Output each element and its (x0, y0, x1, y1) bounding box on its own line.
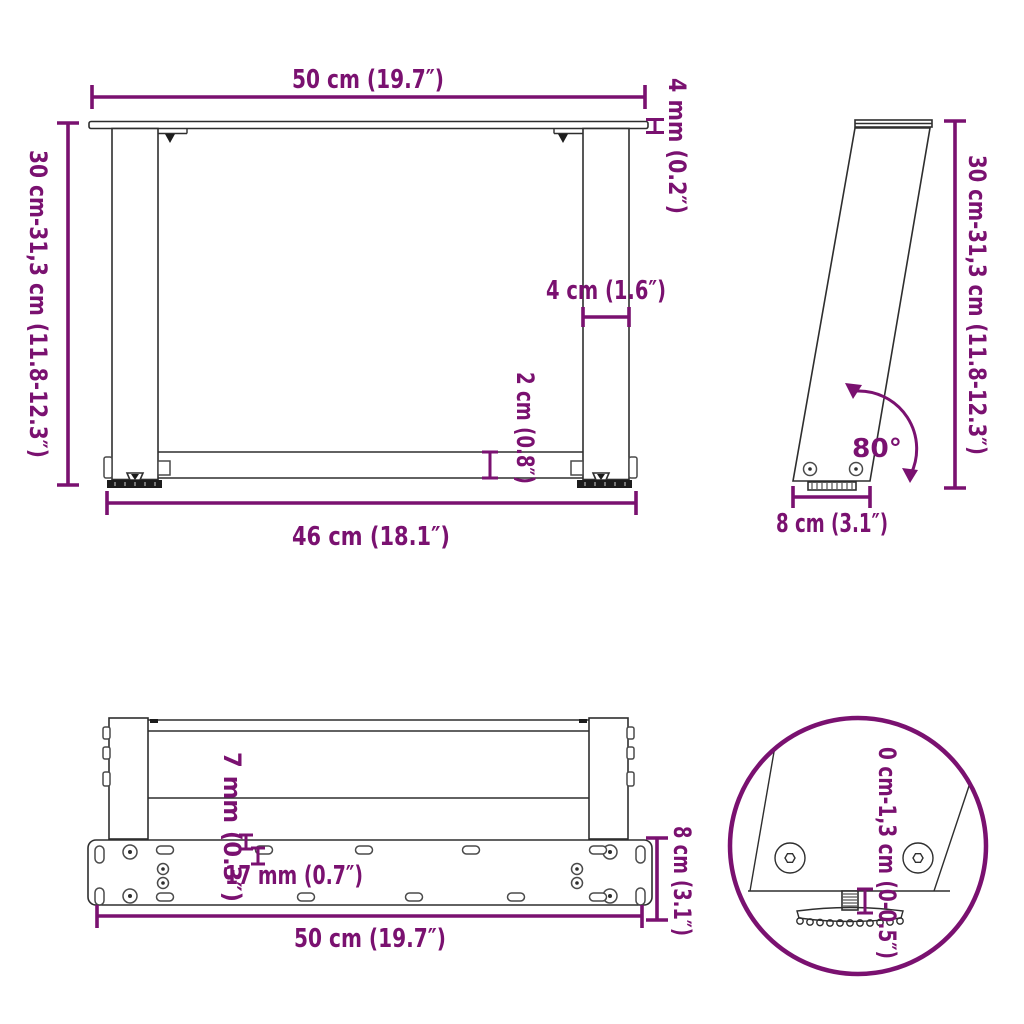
front-width-top-dimension: 50 cm (19.7″) (92, 65, 645, 109)
top-hole-pitch-label: 17 mm (0.7″) (225, 861, 363, 891)
front-right-tab (629, 457, 637, 478)
side-height-dimension: 30 cm-31,3 cm (11.8-12.3″) (944, 121, 991, 488)
side-leg (793, 128, 930, 481)
detail-circle (730, 718, 986, 974)
side-view: 30 cm-31,3 cm (11.8-12.3″) 80° 8 cm (3.1… (776, 120, 991, 539)
dimension-diagram: 50 cm (19.7″) 4 mm (0.2″) (0, 0, 1024, 1024)
top-plate-depth-dimension: 8 cm (3.1″) (646, 826, 696, 936)
front-leg-width-label: 4 cm (1.6″) (546, 276, 666, 306)
front-crossbar-dimension: 2 cm (0.8″) (482, 372, 539, 484)
top-right-screw-mark (579, 719, 587, 723)
front-crossbar-label: 2 cm (0.8″) (511, 372, 539, 484)
front-plate-thickness-dimension: 4 mm (0.2″) (646, 78, 691, 214)
side-angle-label: 80° (852, 434, 902, 464)
top-right-leg-tabs (627, 727, 634, 786)
front-plate-thickness-label: 4 mm (0.2″) (663, 78, 691, 214)
top-left-leg-tabs (103, 727, 110, 786)
top-left-leg (109, 718, 148, 839)
front-left-leg (112, 129, 158, 480)
top-right-leg (589, 718, 628, 839)
front-height-dimension: 30 cm-31,3 cm (11.8-12.3″) (24, 123, 79, 485)
top-view: 7 mm (0.3″) 17 mm (0.7″) 8 cm (3.1″) 50 … (88, 718, 696, 954)
front-left-connector (158, 461, 170, 475)
front-left-screw-icon (165, 134, 175, 143)
top-plate-width-dimension: 50 cm (19.7″) (97, 905, 642, 954)
front-width-bottom-dimension: 46 cm (18.1″) (107, 491, 636, 552)
front-left-tab (104, 457, 112, 478)
detail-adjust-label: 0 cm-1,3 cm (0-0.5″) (873, 747, 901, 959)
top-left-screw-mark (150, 719, 158, 723)
front-width-top-label: 50 cm (19.7″) (292, 65, 444, 95)
side-base-dimension: 8 cm (3.1″) (776, 486, 888, 539)
side-screw-dot-left (808, 467, 812, 471)
front-right-connector (571, 461, 583, 475)
detail-view: 0 cm-1,3 cm (0-0.5″) (730, 718, 986, 974)
side-height-label: 30 cm-31,3 cm (11.8-12.3″) (963, 155, 991, 455)
front-width-bottom-label: 46 cm (18.1″) (292, 522, 450, 552)
side-screw-dot-right (854, 467, 858, 471)
front-top-plate (89, 122, 648, 129)
diagram-svg: 50 cm (19.7″) 4 mm (0.2″) (0, 0, 1024, 1024)
front-right-screw-icon (558, 134, 568, 143)
front-height-label: 30 cm-31,3 cm (11.8-12.3″) (24, 150, 52, 458)
front-view: 50 cm (19.7″) 4 mm (0.2″) (24, 65, 691, 552)
side-base-label: 8 cm (3.1″) (776, 509, 888, 539)
top-plate-width-label: 50 cm (19.7″) (294, 924, 446, 954)
side-foot (808, 482, 856, 490)
top-plate-depth-label: 8 cm (3.1″) (668, 826, 696, 936)
